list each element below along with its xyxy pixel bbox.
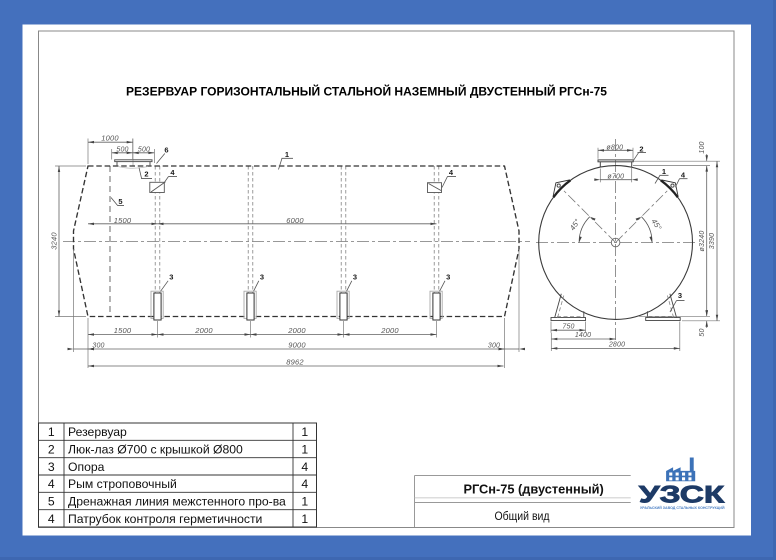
svg-text:Патрубок контроля герметичност: Патрубок контроля герметичности: [68, 512, 262, 526]
svg-text:1400: 1400: [575, 332, 591, 339]
svg-text:4: 4: [48, 512, 55, 526]
svg-text:3: 3: [353, 273, 357, 282]
svg-text:750: 750: [562, 323, 574, 330]
svg-text:2000: 2000: [380, 326, 399, 335]
svg-text:1: 1: [301, 494, 308, 508]
svg-text:1500: 1500: [114, 216, 132, 225]
svg-text:6: 6: [164, 146, 168, 155]
svg-text:РГСн-75 (двустенный): РГСн-75 (двустенный): [463, 482, 603, 497]
svg-text:3240: 3240: [50, 232, 59, 250]
svg-text:ø700: ø700: [607, 174, 624, 181]
svg-text:50: 50: [699, 328, 706, 336]
svg-text:Рым строповочный: Рым строповочный: [68, 477, 177, 491]
svg-text:2: 2: [639, 145, 643, 154]
svg-text:500: 500: [138, 146, 150, 153]
svg-text:4: 4: [301, 477, 308, 491]
svg-text:3: 3: [169, 273, 173, 282]
svg-text:5: 5: [48, 494, 55, 508]
svg-text:1: 1: [301, 512, 308, 526]
svg-text:1500: 1500: [114, 326, 132, 335]
svg-text:РЕЗЕРВУАР ГОРИЗОНТАЛЬНЫЙ СТАЛЬ: РЕЗЕРВУАР ГОРИЗОНТАЛЬНЫЙ СТАЛЬНОЙ НАЗЕМН…: [126, 84, 607, 99]
svg-text:1: 1: [301, 442, 308, 456]
svg-text:1: 1: [285, 150, 289, 159]
svg-text:УРАЛЬСКИЙ ЗАВОД СТАЛЬНЫХ КОНСТ: УРАЛЬСКИЙ ЗАВОД СТАЛЬНЫХ КОНСТРУКЦИЙ: [640, 506, 725, 510]
svg-text:4: 4: [48, 477, 55, 491]
svg-text:2000: 2000: [287, 326, 306, 335]
svg-text:3390: 3390: [709, 233, 716, 249]
svg-text:300: 300: [92, 343, 104, 350]
svg-text:100: 100: [699, 141, 706, 153]
svg-text:УЗСК: УЗСК: [639, 482, 725, 509]
svg-text:Опора: Опора: [68, 460, 105, 474]
svg-text:1: 1: [301, 425, 308, 439]
svg-text:9000: 9000: [288, 341, 306, 350]
svg-text:1: 1: [48, 425, 55, 439]
svg-text:5: 5: [118, 197, 122, 206]
svg-text:2: 2: [48, 442, 55, 456]
svg-text:2: 2: [144, 169, 148, 178]
svg-text:Резервуар: Резервуар: [68, 425, 127, 439]
svg-text:Люк-лаз Ø700 с крышкой Ø800: Люк-лаз Ø700 с крышкой Ø800: [68, 442, 243, 456]
svg-text:3: 3: [446, 273, 450, 282]
svg-text:1: 1: [662, 167, 666, 176]
svg-text:500: 500: [116, 146, 128, 153]
svg-text:1000: 1000: [101, 134, 119, 143]
svg-text:ø3240: ø3240: [699, 231, 706, 252]
svg-text:2000: 2000: [194, 326, 213, 335]
svg-text:300: 300: [488, 343, 500, 350]
svg-text:3: 3: [48, 460, 55, 474]
svg-text:4: 4: [301, 460, 308, 474]
svg-text:3: 3: [678, 291, 682, 300]
svg-text:ø800: ø800: [606, 144, 623, 151]
svg-text:3: 3: [260, 273, 264, 282]
svg-text:2800: 2800: [608, 342, 625, 349]
svg-text:Общий вид: Общий вид: [495, 511, 550, 523]
svg-text:6000: 6000: [286, 216, 304, 225]
svg-text:8962: 8962: [286, 358, 304, 367]
svg-text:Дренажная линия межстенного пр: Дренажная линия межстенного про-ва: [68, 494, 286, 508]
